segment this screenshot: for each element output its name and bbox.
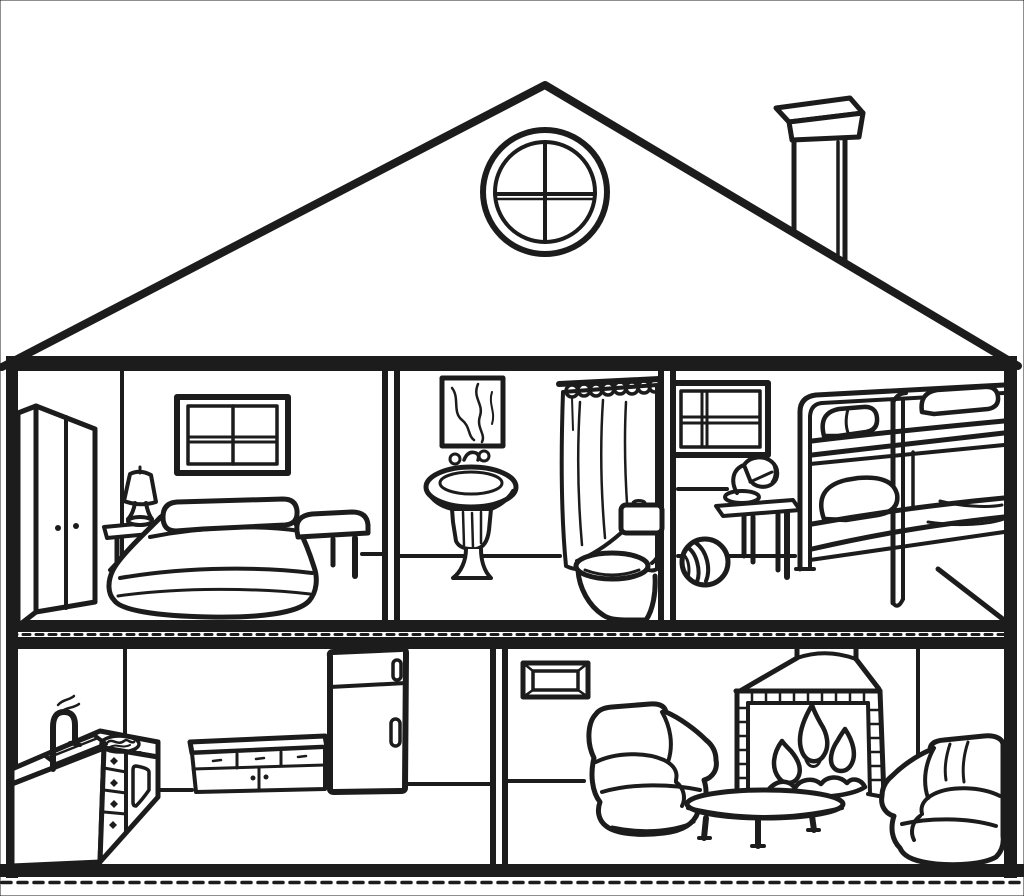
sideboard-cabinet <box>190 736 327 792</box>
kids-window <box>673 383 768 455</box>
bedroom-window <box>177 397 288 473</box>
bedside-lamp <box>124 467 156 525</box>
beach-ball <box>682 539 728 585</box>
round-attic-window <box>483 130 607 254</box>
wardrobe <box>18 406 95 626</box>
upper-pillow-right <box>922 387 999 414</box>
wall-vent-frame <box>523 663 588 697</box>
refrigerator <box>330 649 406 792</box>
wall-bedroom-bathroom <box>382 371 388 620</box>
coloring-page <box>0 0 1024 896</box>
wall-kitchen-livingroom <box>490 649 496 864</box>
fridge-handle <box>391 719 400 746</box>
upper-pillow-left <box>823 407 877 436</box>
house-drawing <box>0 0 1024 896</box>
wall-picture <box>442 378 503 446</box>
freezer-handle <box>393 660 401 680</box>
